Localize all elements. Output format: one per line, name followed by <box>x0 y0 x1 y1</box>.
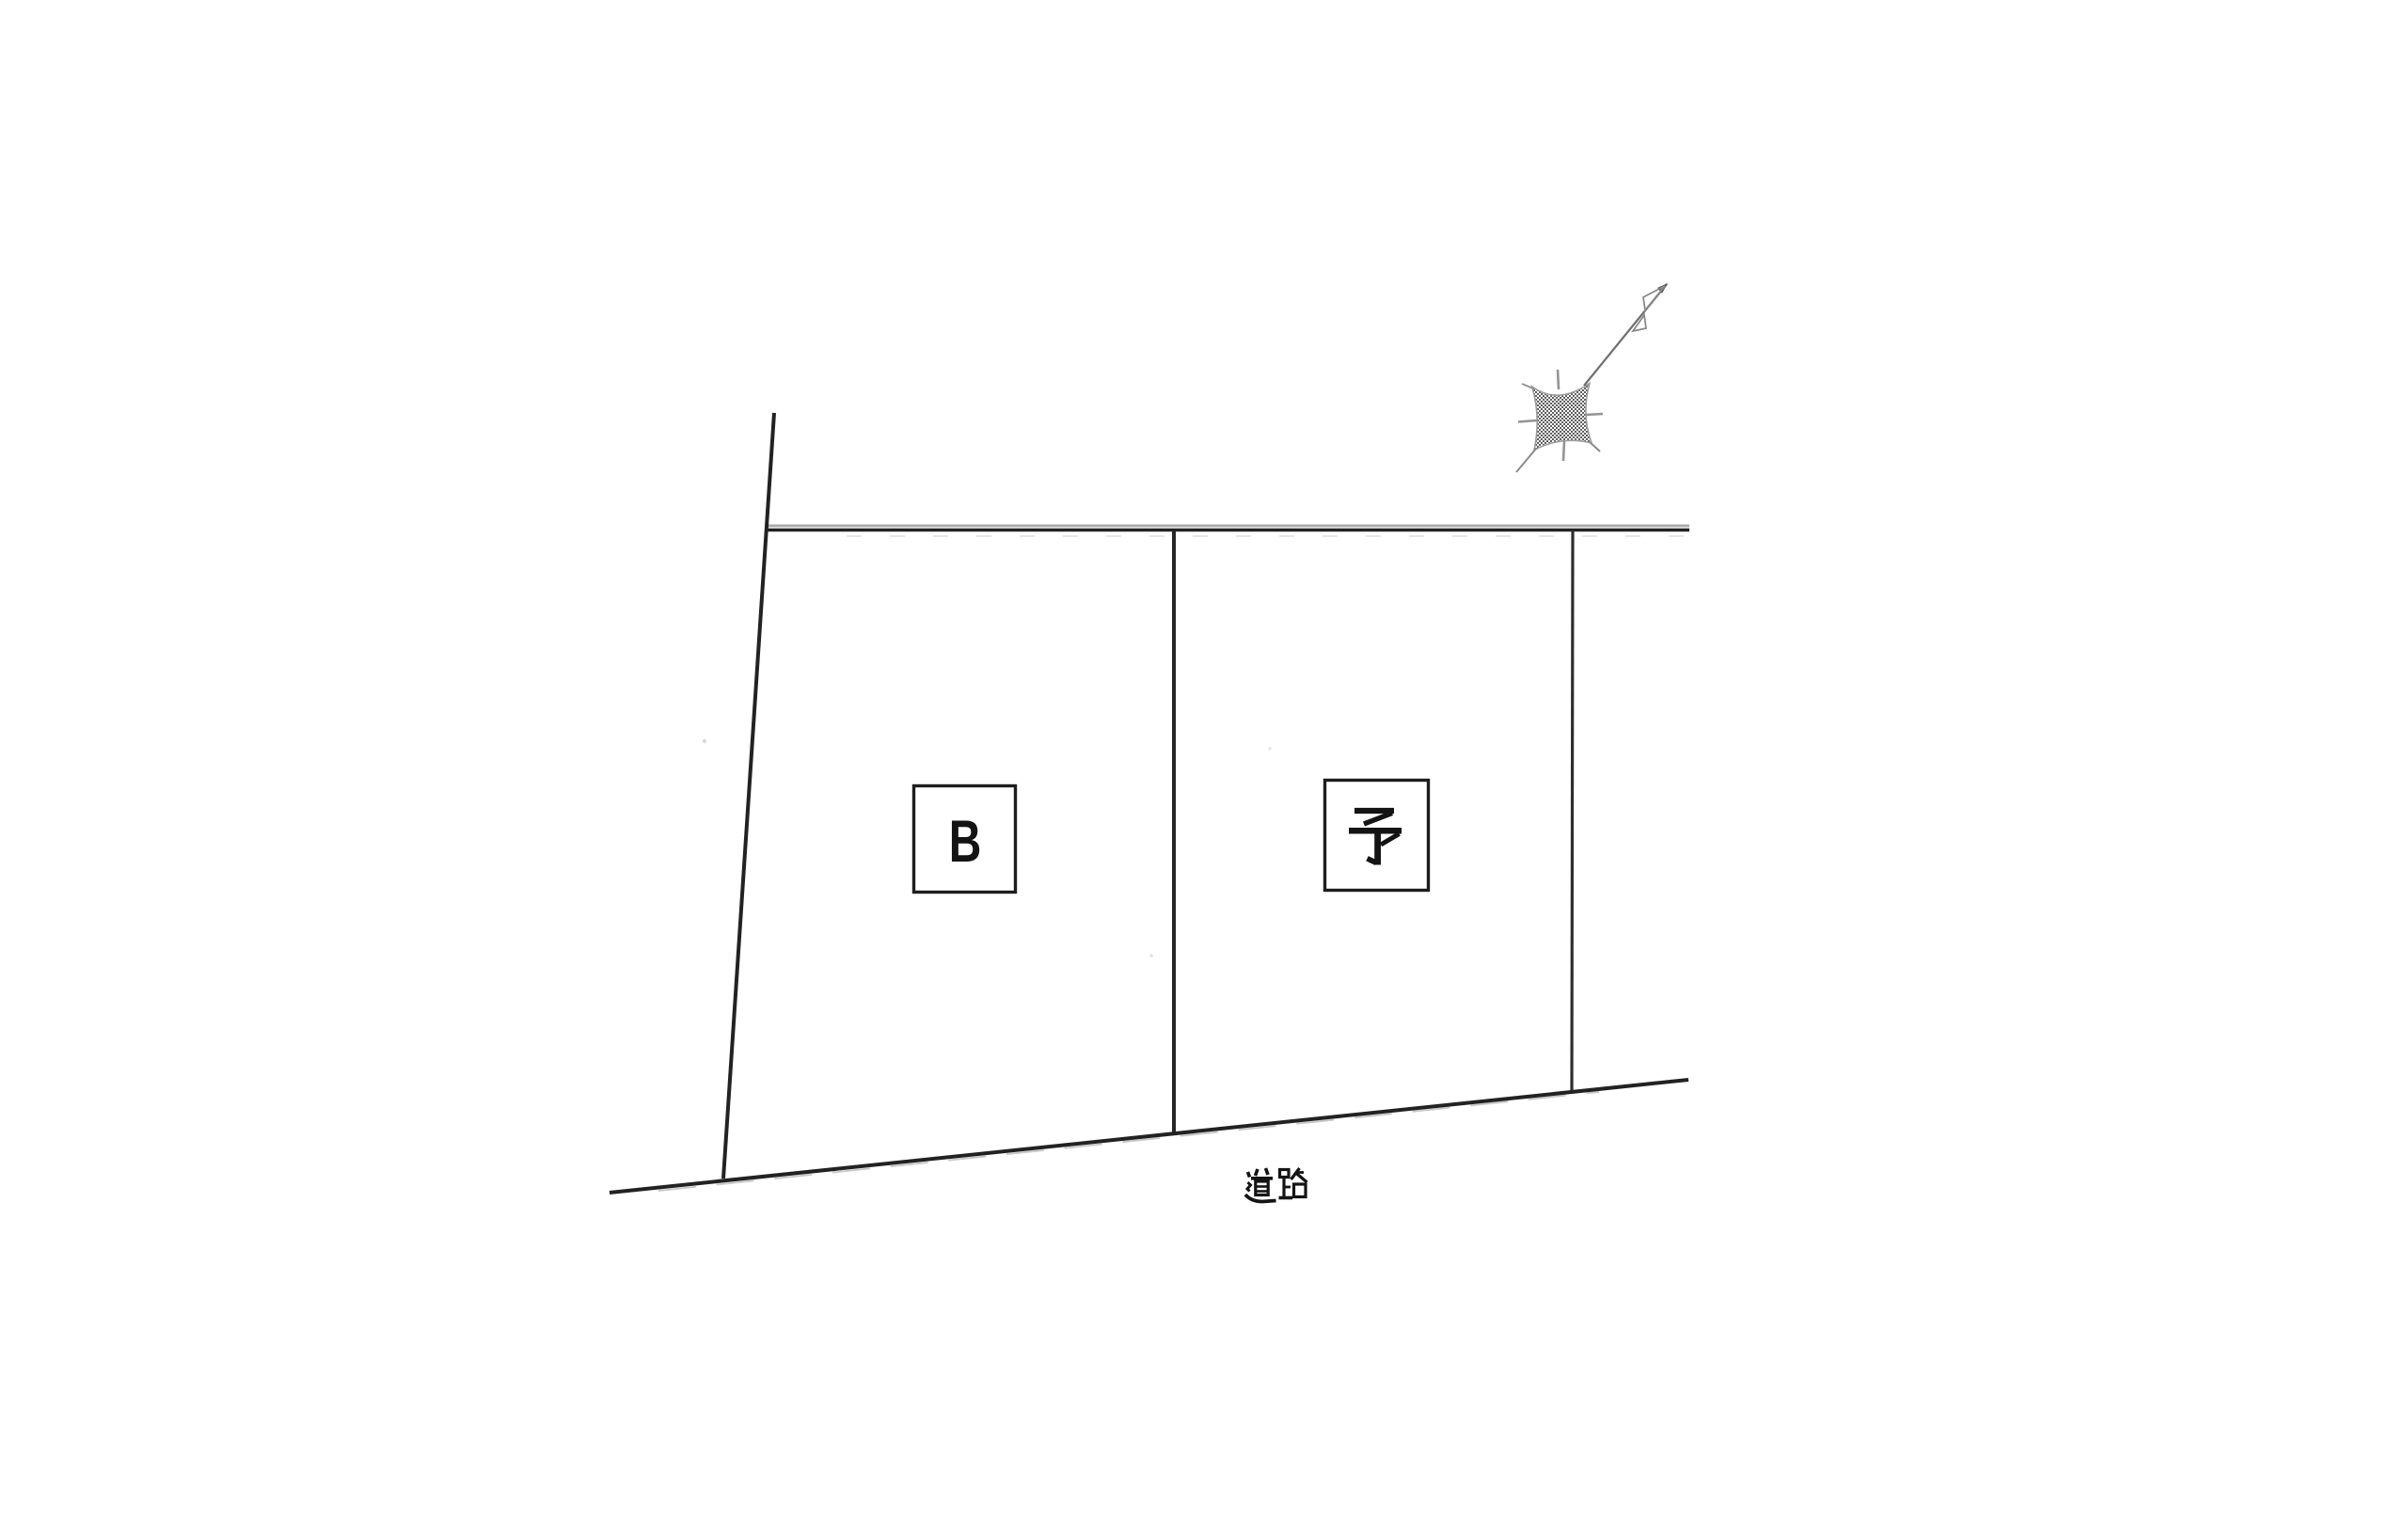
svg-text:B: B <box>949 808 982 875</box>
